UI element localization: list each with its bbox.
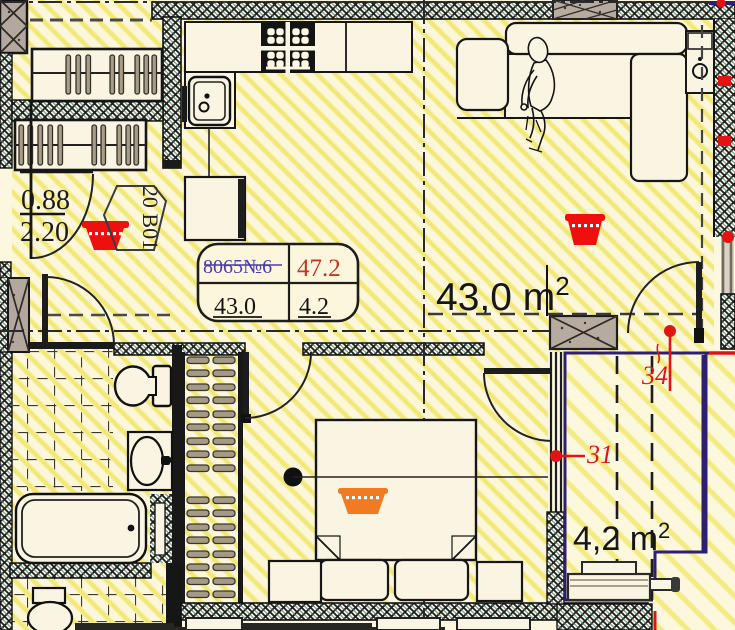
- svg-text:43,0 m2: 43,0 m2: [436, 271, 570, 319]
- svg-text:34: 34: [641, 361, 668, 390]
- svg-text:20 В01: 20 В01: [138, 186, 163, 250]
- svg-text:47.2: 47.2: [297, 255, 341, 282]
- svg-text:4,2 m2: 4,2 m2: [573, 518, 670, 558]
- svg-text:31: 31: [586, 440, 613, 469]
- svg-text:8065№6: 8065№6: [203, 256, 272, 278]
- svg-text:0.88: 0.88: [21, 185, 70, 216]
- svg-text:2.20: 2.20: [20, 217, 69, 248]
